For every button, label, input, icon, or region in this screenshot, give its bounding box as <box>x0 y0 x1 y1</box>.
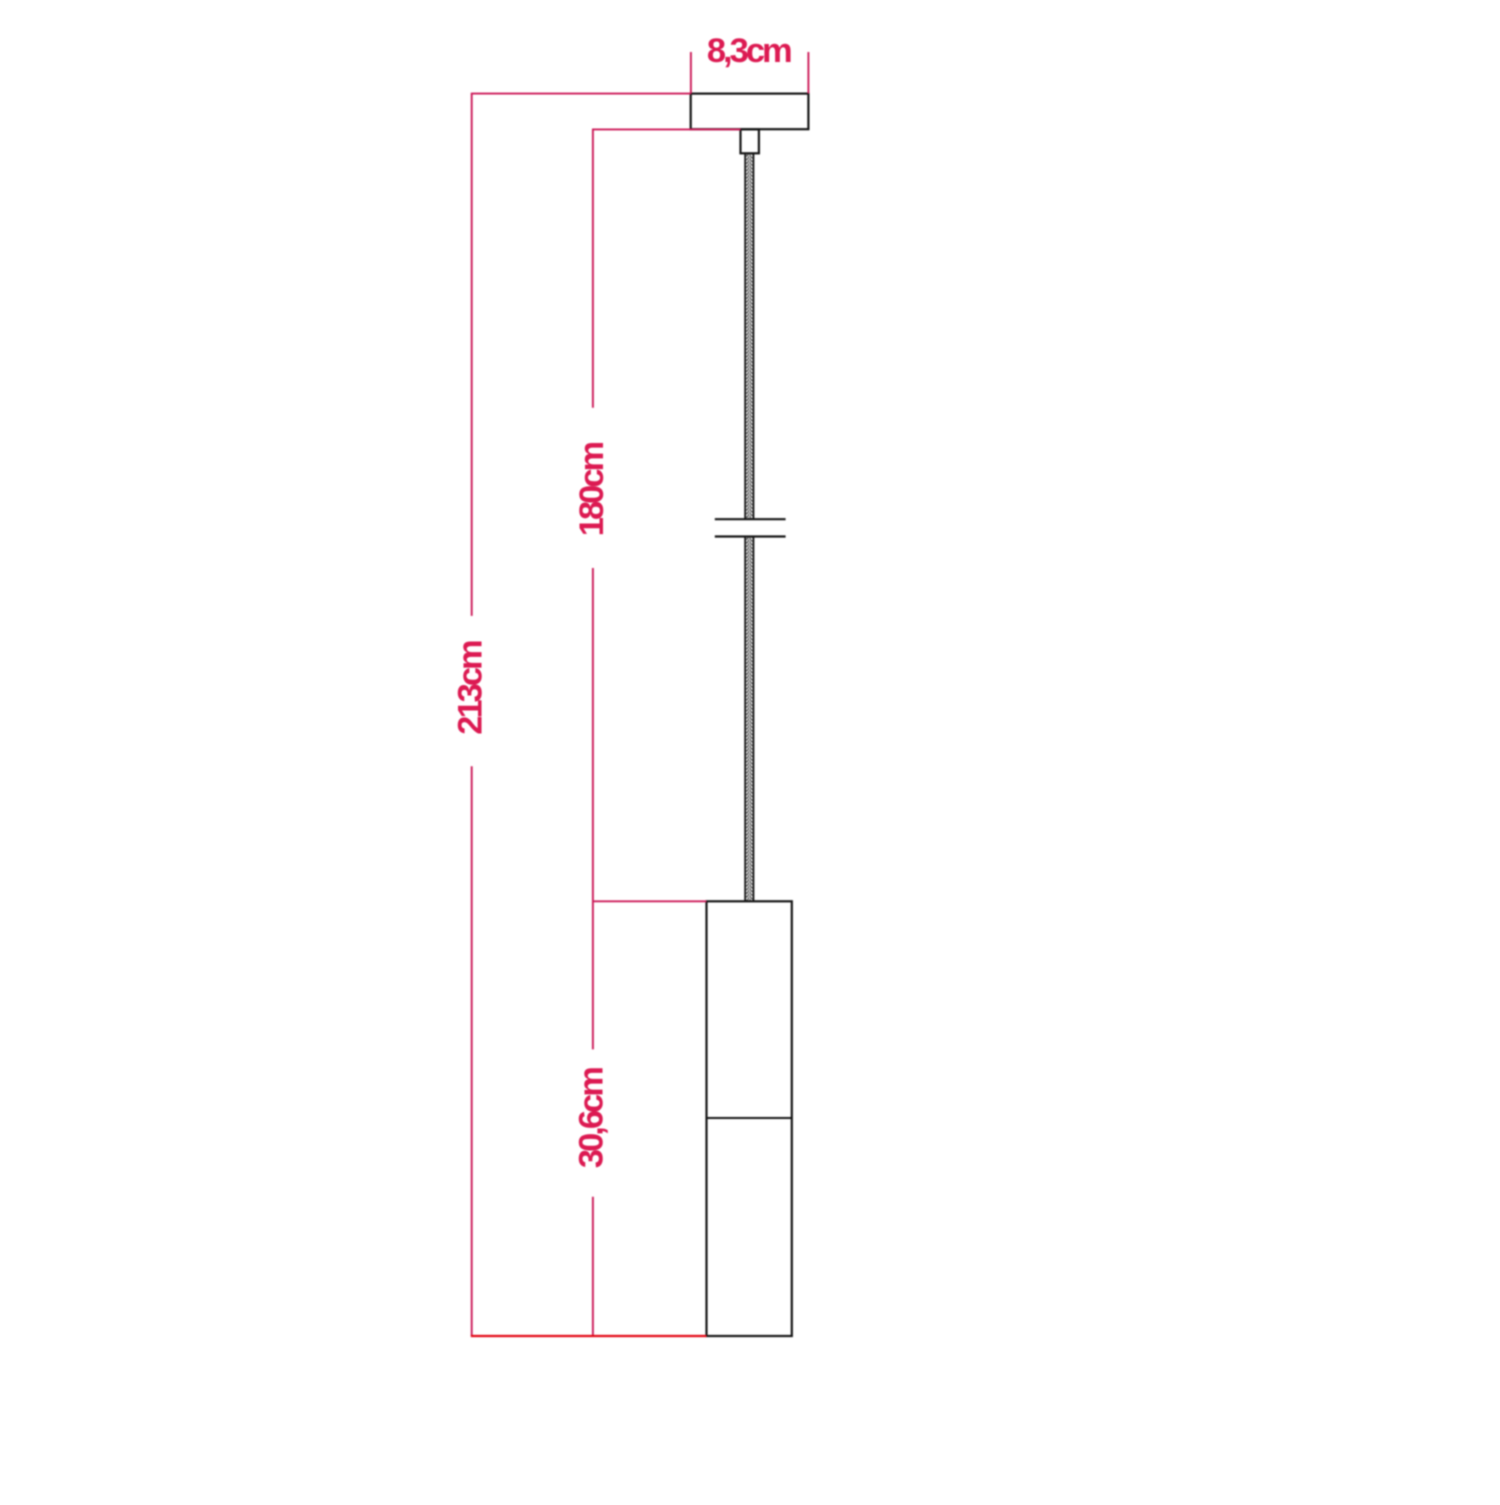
svg-text:30,6cm: 30,6cm <box>573 1068 611 1168</box>
svg-text:213cm: 213cm <box>452 641 490 735</box>
svg-text:180cm: 180cm <box>573 442 611 536</box>
svg-text:8,3cm: 8,3cm <box>707 32 791 70</box>
